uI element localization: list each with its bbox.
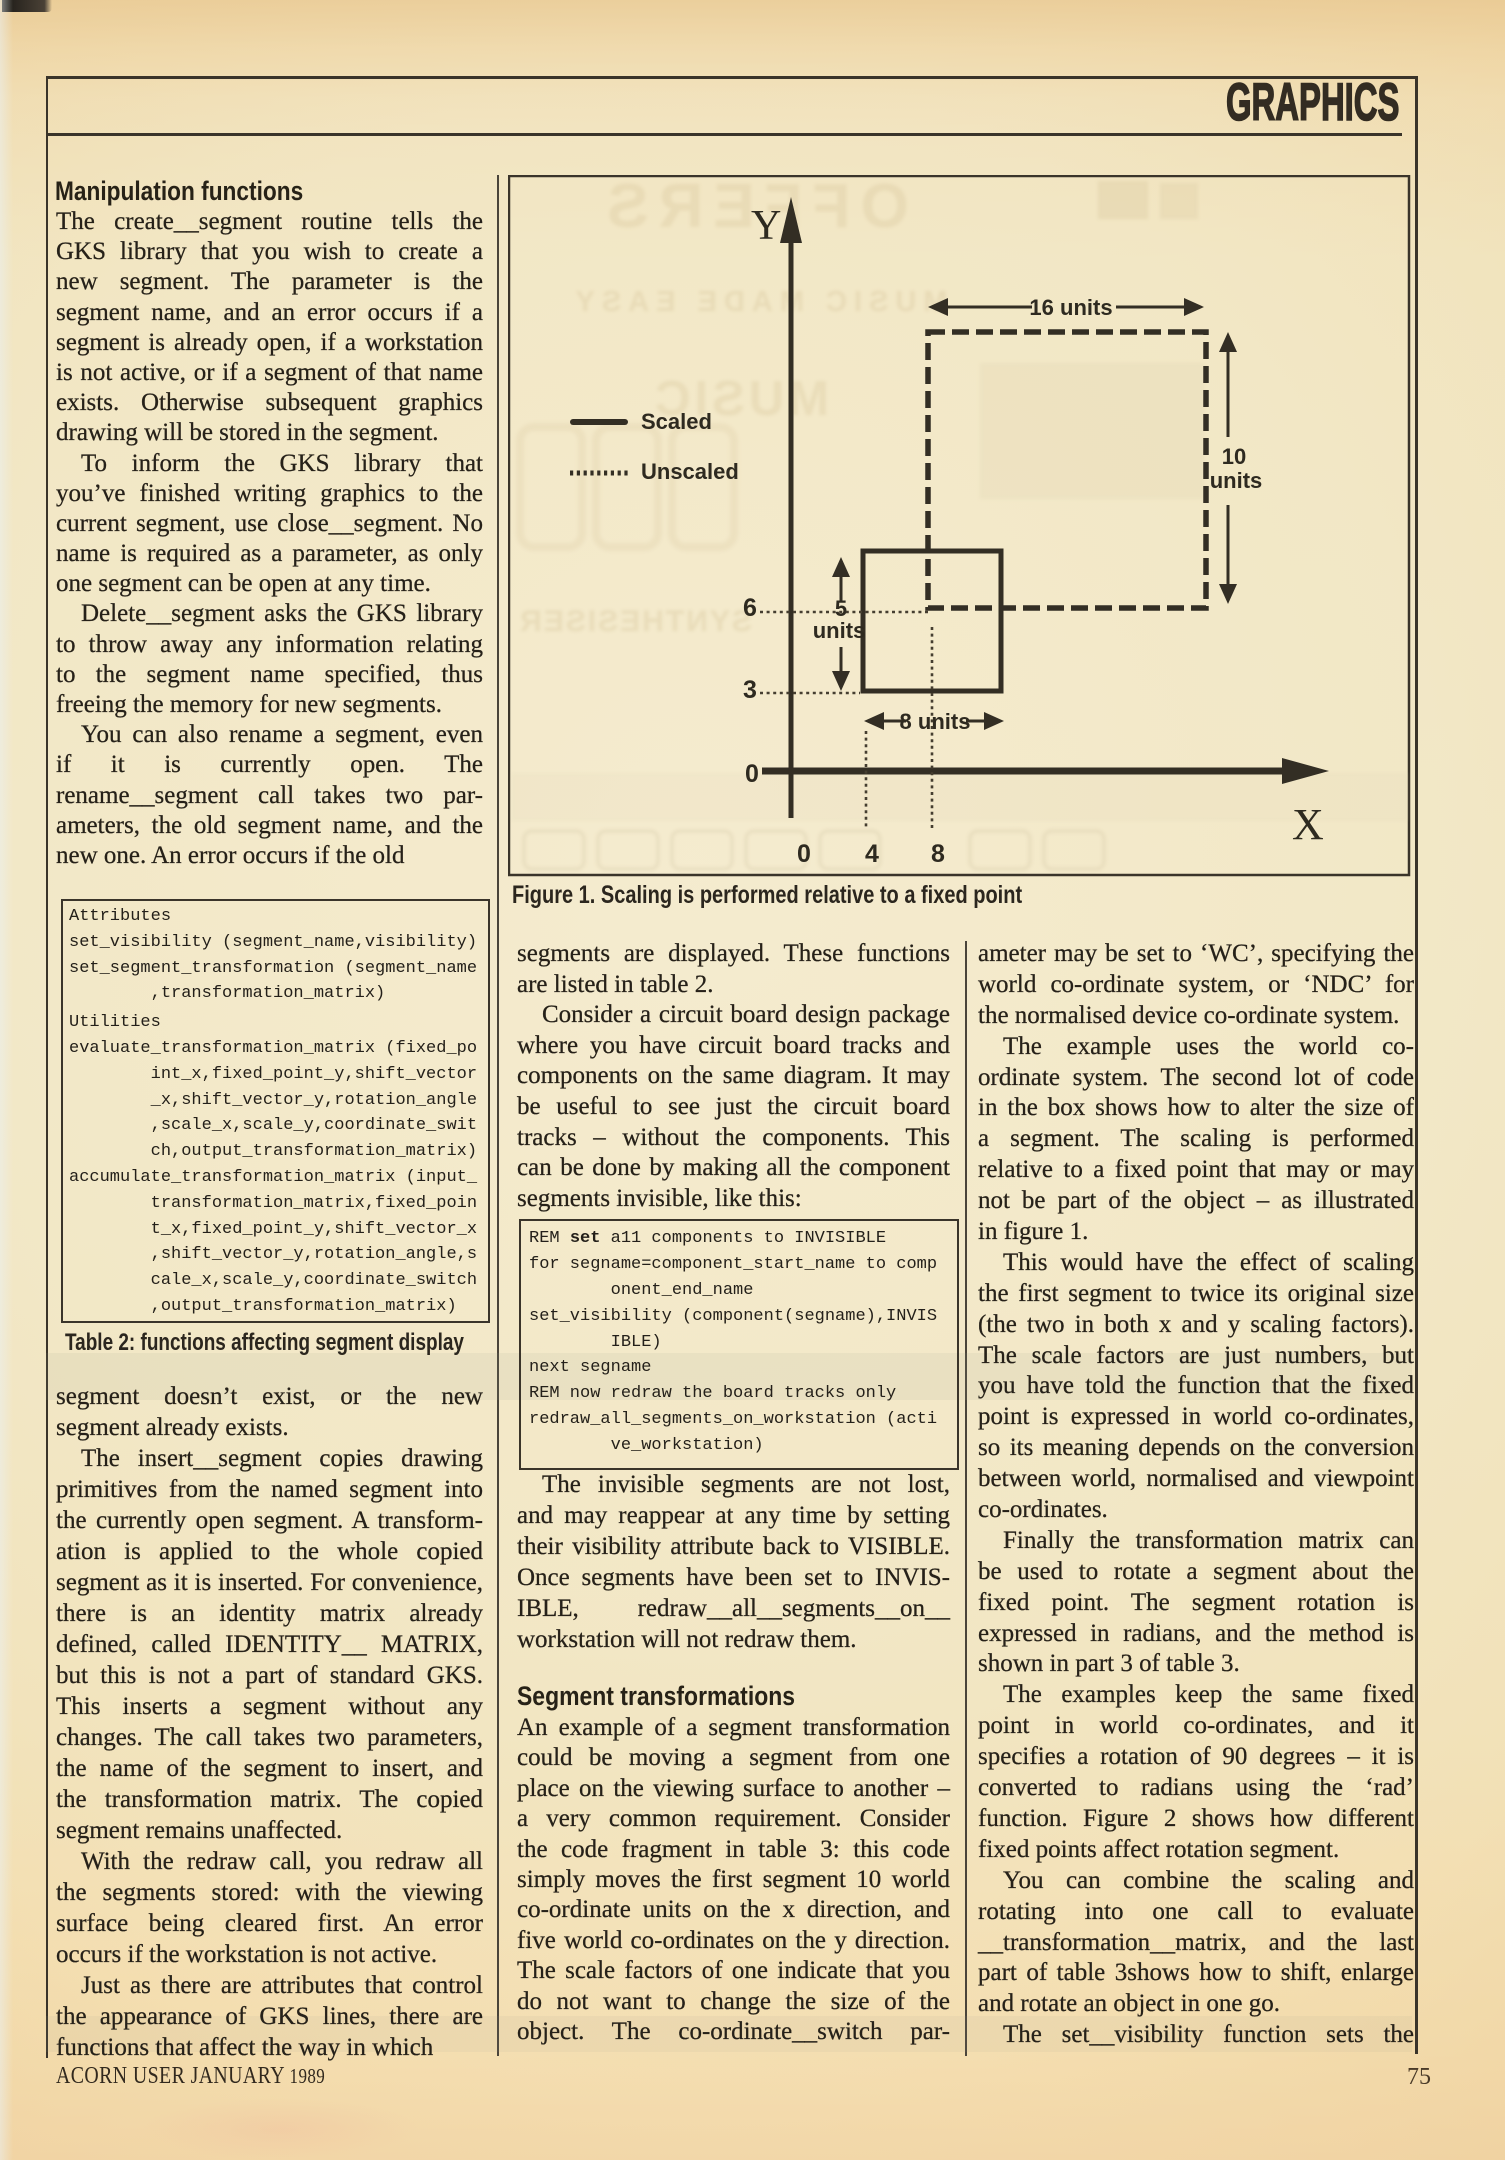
svg-text:0: 0 [797, 840, 811, 868]
svg-text:16 units: 16 units [1029, 295, 1112, 320]
svg-text:10: 10 [1222, 444, 1246, 469]
svg-text:Y: Y [751, 203, 781, 249]
svg-text:8 units: 8 units [900, 709, 971, 734]
svg-text:MUSIC MADE EASY: MUSIC MADE EASY [569, 286, 948, 318]
svg-text:0: 0 [745, 760, 759, 788]
svg-text:units: units [813, 618, 866, 643]
svg-text:X: X [1292, 800, 1324, 849]
svg-text:4: 4 [865, 840, 879, 868]
svg-text:8: 8 [931, 840, 945, 868]
svg-text:Scaled: Scaled [641, 409, 712, 434]
svg-text:units: units [1210, 468, 1263, 493]
svg-text:SYNTHESISER: SYNTHESISER [518, 605, 752, 638]
svg-text:3: 3 [743, 676, 757, 704]
svg-text:6: 6 [743, 594, 757, 622]
svg-text:Unscaled: Unscaled [641, 459, 739, 484]
